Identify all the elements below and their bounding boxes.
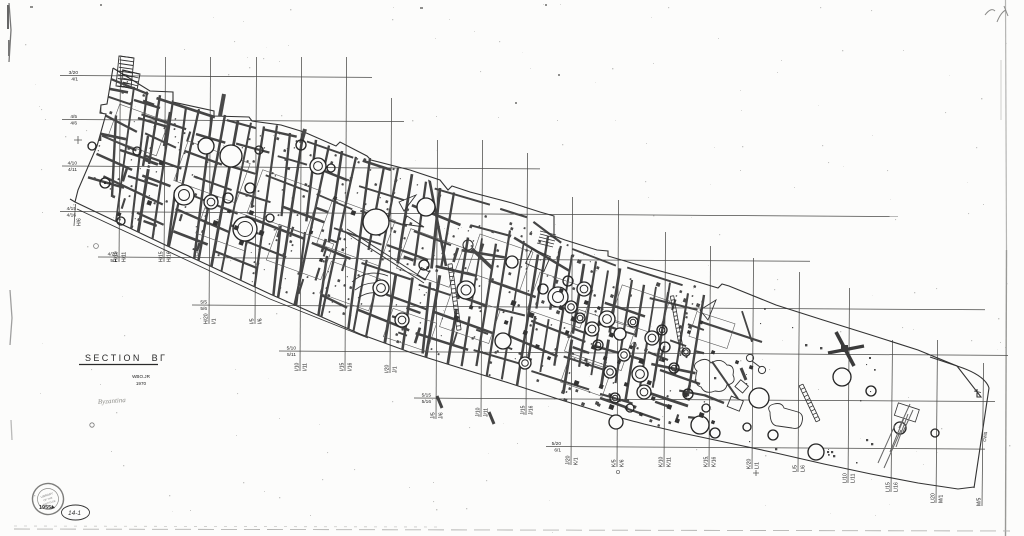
svg-text:K/6: K/6 <box>619 459 625 467</box>
svg-text:I/10: I/10 <box>294 362 300 371</box>
svg-text:K/16: K/16 <box>711 456 717 467</box>
svg-text:4/11: 4/11 <box>68 167 77 173</box>
svg-text:4/5: 4/5 <box>70 114 77 120</box>
svg-text:K/10: K/10 <box>658 456 664 467</box>
svg-text:3/20: 3/20 <box>69 70 79 76</box>
svg-text:J/6: J/6 <box>438 412 444 419</box>
svg-text:J/5: J/5 <box>430 412 436 419</box>
svg-text:L/5: L/5 <box>792 465 798 472</box>
svg-text:I/15: I/15 <box>339 362 345 371</box>
svg-text:4/1: 4/1 <box>71 77 78 83</box>
svg-text:K/5: K/5 <box>611 459 617 467</box>
svg-text:L/10: L/10 <box>842 473 848 483</box>
svg-text:J/1: J/1 <box>392 366 398 373</box>
svg-text:H/10: H/10 <box>113 251 119 262</box>
svg-text:SECTION BГ: SECTION BГ <box>85 353 167 363</box>
svg-text:I/16: I/16 <box>347 362 353 371</box>
svg-text:5/5: 5/5 <box>200 299 207 305</box>
svg-text:H/6: H/6 <box>76 218 82 226</box>
svg-text:I/6: I/6 <box>257 318 263 324</box>
svg-text:5/16: 5/16 <box>422 399 432 405</box>
svg-text:M/5: M/5 <box>976 497 982 506</box>
svg-text:L/16: L/16 <box>893 482 899 492</box>
svg-text:H/11: H/11 <box>121 252 127 262</box>
svg-text:L/1: L/1 <box>754 462 760 469</box>
svg-text:L/20: L/20 <box>930 493 936 503</box>
svg-text:M/1: M/1 <box>938 494 944 503</box>
svg-text:4/6: 4/6 <box>70 121 77 127</box>
svg-text:J/20: J/20 <box>565 455 571 465</box>
svg-text:K/20: K/20 <box>746 458 752 469</box>
svg-text:I/5: I/5 <box>249 318 255 324</box>
svg-text:1955: 1955 <box>39 505 51 511</box>
svg-text:J/10: J/10 <box>475 407 481 417</box>
svg-text:J/16: J/16 <box>528 405 534 415</box>
svg-text:5/11: 5/11 <box>287 352 296 358</box>
svg-text:14-1: 14-1 <box>68 510 81 517</box>
svg-text:K/1: K/1 <box>573 457 579 465</box>
svg-text:J/15: J/15 <box>520 405 526 415</box>
svg-text:6/1: 6/1 <box>554 448 561 454</box>
svg-text:H/20: H/20 <box>203 313 209 324</box>
svg-text:1970: 1970 <box>136 381 147 386</box>
svg-text:H/15: H/15 <box>158 251 164 262</box>
svg-text:5/15: 5/15 <box>422 392 432 398</box>
svg-text:4/10: 4/10 <box>68 160 78 166</box>
svg-text:5/6: 5/6 <box>200 306 207 312</box>
svg-text:K/11: K/11 <box>666 457 672 467</box>
svg-text:5/10: 5/10 <box>287 345 297 351</box>
svg-text:L/11: L/11 <box>850 473 856 483</box>
svg-text:I/20: I/20 <box>384 364 390 373</box>
svg-text:5/20: 5/20 <box>552 441 562 447</box>
svg-text:I/1: I/1 <box>211 318 217 324</box>
svg-text:K/15: K/15 <box>703 456 709 467</box>
svg-text:I/11: I/11 <box>302 363 308 371</box>
svg-text:WBO.JR: WBO.JR <box>132 374 151 379</box>
svg-text:L/6: L/6 <box>800 465 806 472</box>
svg-text:L/15: L/15 <box>885 482 891 492</box>
